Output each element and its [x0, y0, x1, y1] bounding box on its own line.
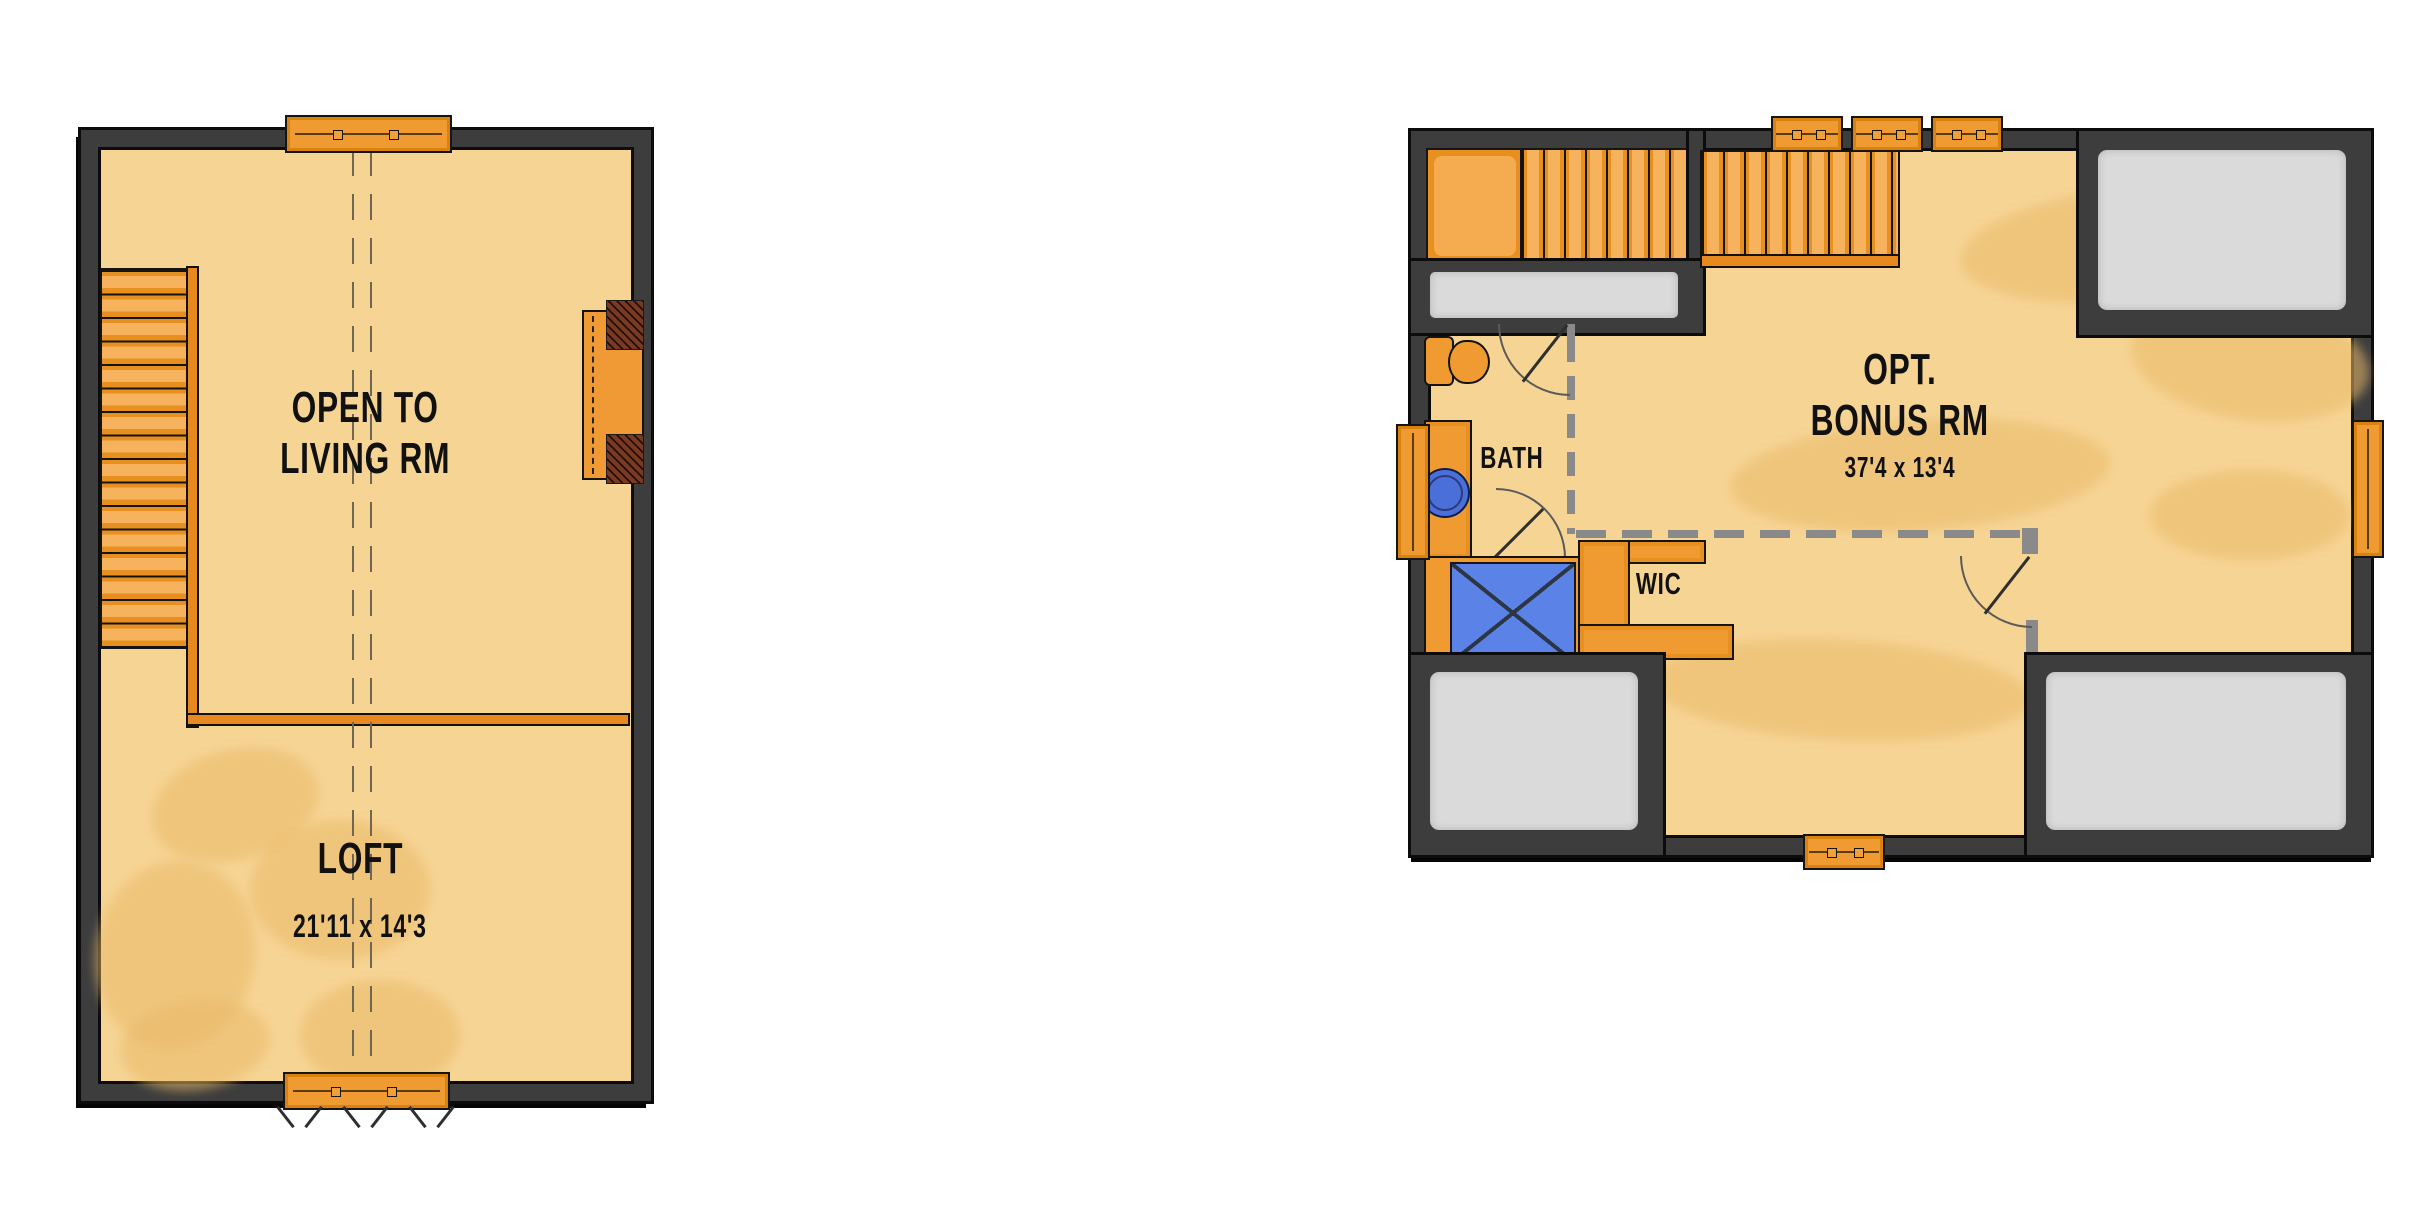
stairs-icon [1700, 150, 1900, 258]
wic-wall-jamb [2022, 528, 2038, 554]
attic-storage [2046, 672, 2346, 830]
wic-dashed-wall [1576, 530, 2022, 538]
window-icon [2352, 420, 2384, 558]
door-panel-dash [592, 316, 594, 474]
shower-icon [1450, 562, 1576, 664]
bonus-room-label: OPT. BONUS RM [1760, 344, 2040, 446]
attic-storage [1430, 672, 1638, 830]
stair-railing-vertical [186, 266, 199, 728]
door-jamb-hatch [606, 300, 644, 350]
window-icon [1771, 116, 1843, 152]
window-icon [1396, 424, 1430, 560]
window-icon [283, 1072, 450, 1110]
bath-label: BATH [1452, 440, 1572, 476]
loft-dimensions-label: 21'11 x 14'3 [230, 908, 490, 945]
loft-label: LOFT [230, 833, 490, 884]
window-icon [1851, 116, 1923, 152]
stair-railing [1700, 254, 1900, 268]
window-icon [1803, 834, 1885, 870]
stairs-icon [100, 268, 190, 649]
door-jamb-hatch [606, 434, 644, 484]
window-icon [1931, 116, 2003, 152]
open-to-living-label: OPEN TO LIVING RM [225, 382, 505, 484]
loft-railing-horizontal [186, 713, 630, 726]
stairs-icon [1520, 148, 1692, 264]
floor-texture [2150, 470, 2350, 560]
toilet-icon [1448, 340, 1490, 384]
stair-landing [1426, 148, 1524, 264]
stair-closet-interior [1430, 272, 1678, 318]
floor-plan-canvas: OPEN TO LIVING RM LOFT 21'11 x 14'3 [0, 0, 2435, 1215]
window-icon [285, 115, 452, 153]
bonus-dimensions-label: 37'4 x 13'4 [1760, 452, 2040, 485]
attic-storage [2098, 150, 2346, 310]
wic-label: WIC [1614, 566, 1704, 602]
